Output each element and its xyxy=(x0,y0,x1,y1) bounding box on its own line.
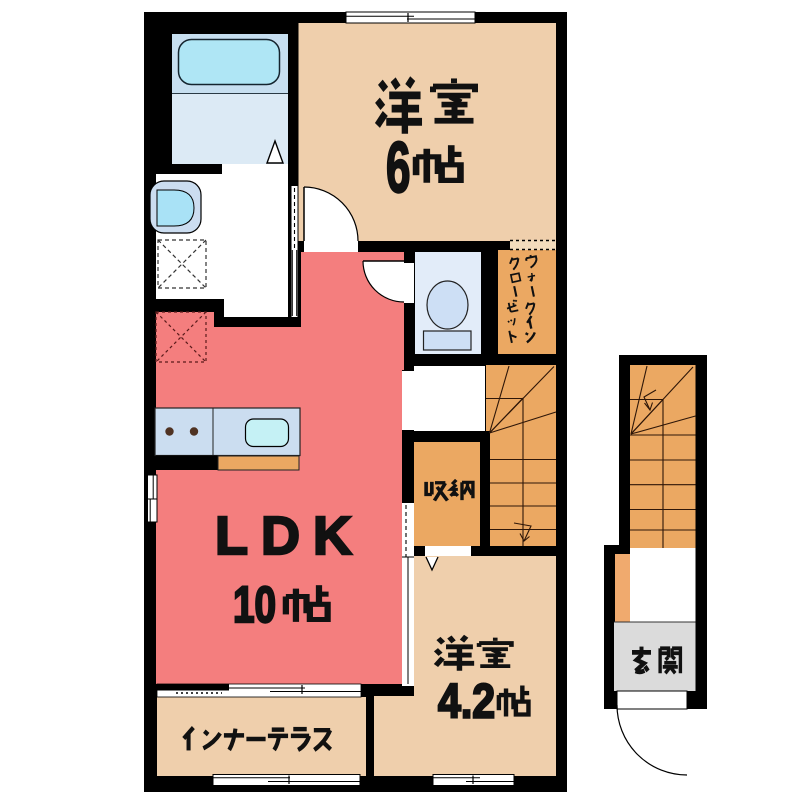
svg-text:4.2: 4.2 xyxy=(438,676,495,729)
svg-text:6: 6 xyxy=(386,128,410,207)
svg-text:10: 10 xyxy=(233,576,276,633)
svg-text:LDK: LDK xyxy=(215,506,365,566)
